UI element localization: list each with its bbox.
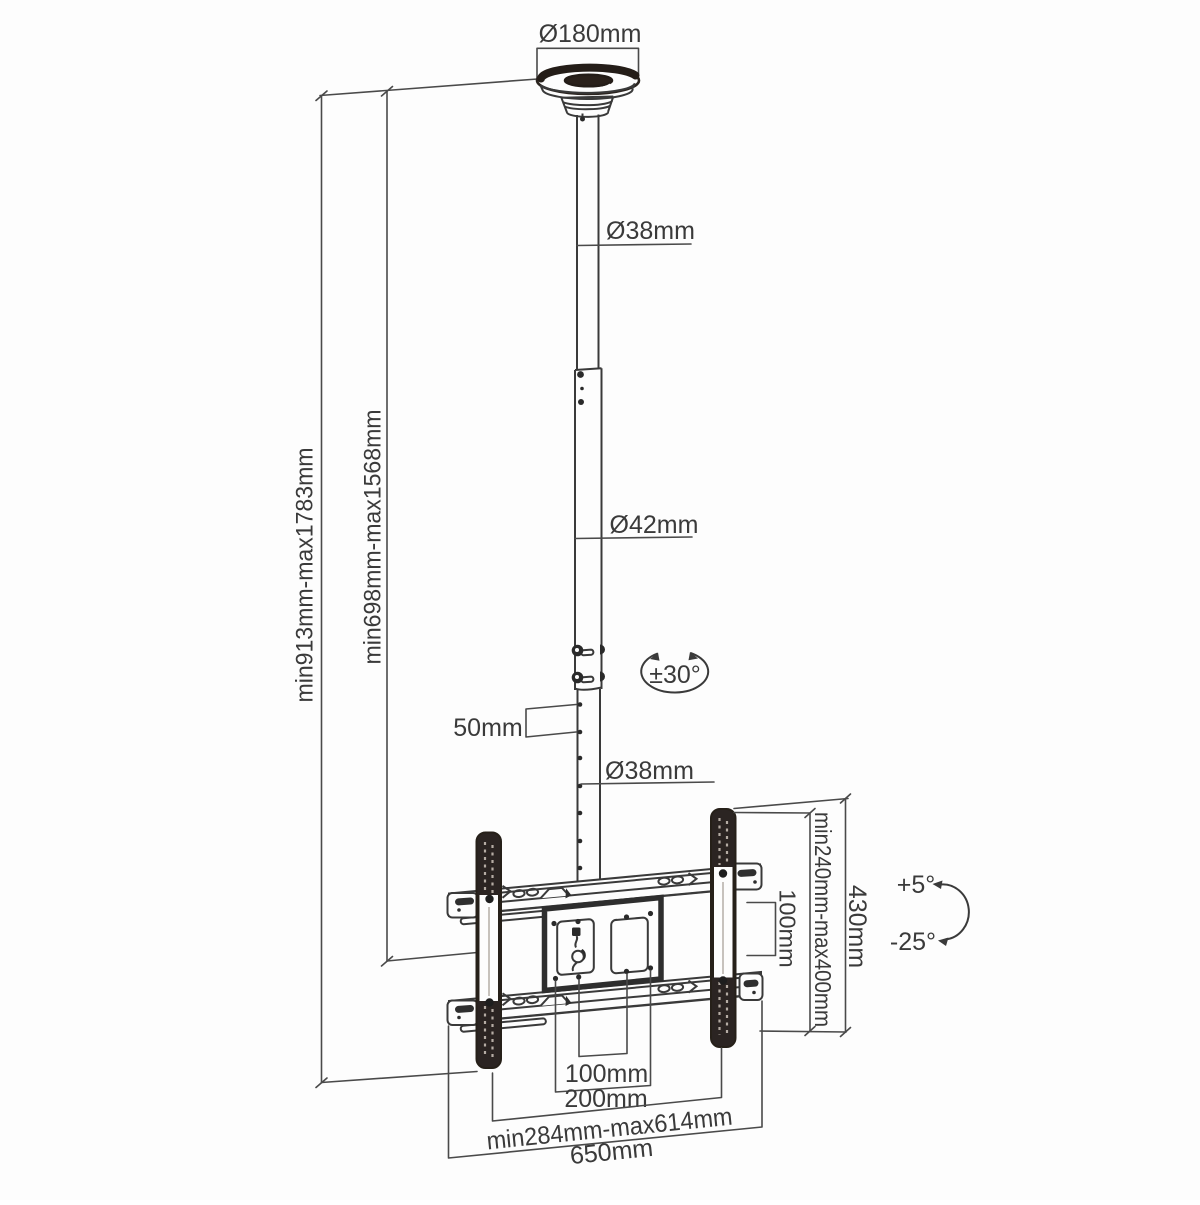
svg-text:100mm: 100mm [774, 889, 800, 967]
svg-text:min913mm-max1783mm: min913mm-max1783mm [291, 448, 318, 703]
svg-text:min240mm-max400mm: min240mm-max400mm [810, 812, 836, 1027]
svg-text:+5°: +5° [897, 871, 936, 899]
svg-text:Ø38mm: Ø38mm [605, 757, 694, 785]
svg-text:±30°: ±30° [649, 661, 701, 689]
svg-text:-25°: -25° [890, 928, 936, 956]
svg-text:100mm: 100mm [565, 1060, 648, 1088]
svg-text:50mm: 50mm [453, 714, 522, 742]
svg-text:min698mm-max1568mm: min698mm-max1568mm [359, 410, 386, 665]
svg-text:Ø42mm: Ø42mm [610, 511, 699, 539]
svg-text:430mm: 430mm [843, 885, 871, 968]
svg-text:Ø38mm: Ø38mm [606, 217, 695, 245]
svg-text:Ø180mm: Ø180mm [539, 20, 642, 48]
